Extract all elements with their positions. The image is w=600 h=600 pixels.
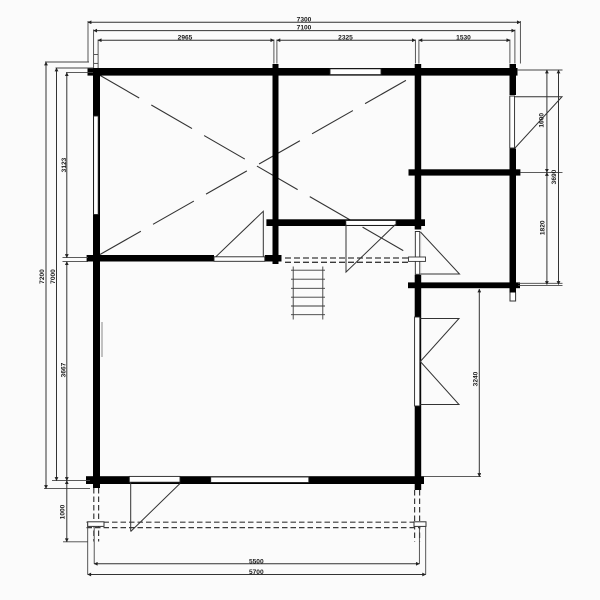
svg-text:1820: 1820 — [540, 220, 547, 235]
svg-text:3123: 3123 — [61, 157, 68, 172]
svg-text:7000: 7000 — [50, 269, 57, 284]
svg-text:5500: 5500 — [249, 558, 264, 565]
svg-text:1600: 1600 — [538, 113, 545, 128]
svg-text:2965: 2965 — [178, 34, 193, 41]
svg-text:3690: 3690 — [551, 169, 558, 184]
svg-text:7300: 7300 — [297, 16, 312, 23]
svg-text:3240: 3240 — [472, 371, 479, 386]
svg-text:1530: 1530 — [456, 34, 471, 41]
svg-text:1000: 1000 — [60, 504, 67, 519]
svg-text:5700: 5700 — [249, 569, 264, 576]
svg-text:3667: 3667 — [60, 362, 67, 377]
svg-text:7200: 7200 — [39, 269, 46, 284]
svg-text:7100: 7100 — [297, 25, 312, 32]
svg-text:2325: 2325 — [338, 34, 353, 41]
